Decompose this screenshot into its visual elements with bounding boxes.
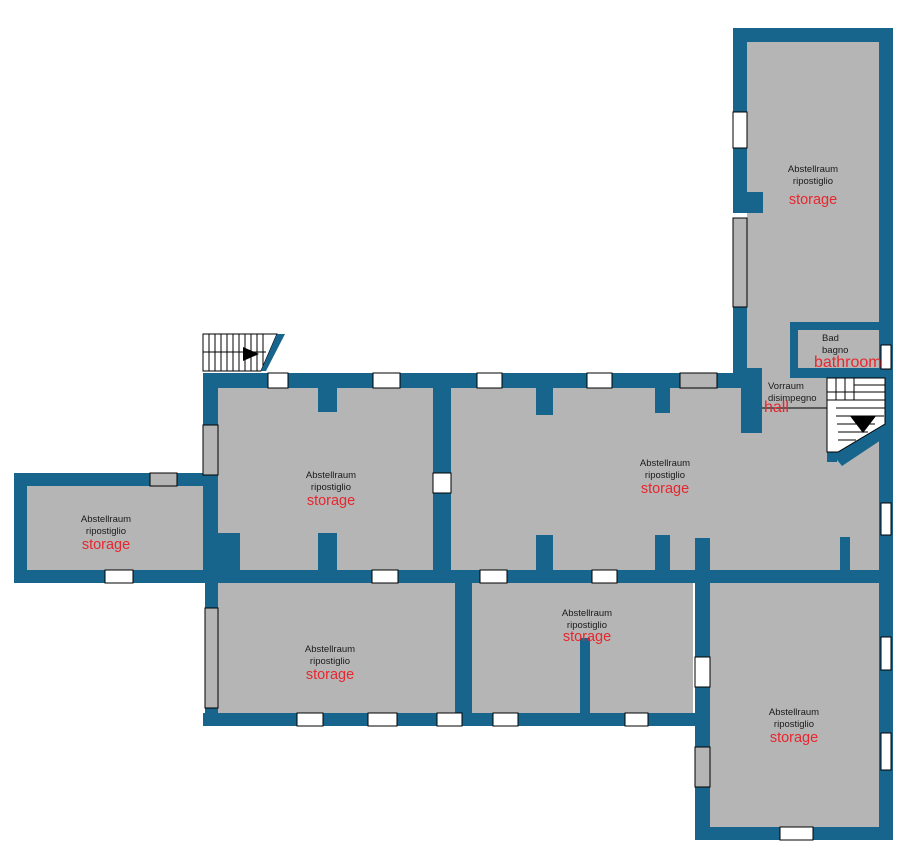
door-opening [733,218,747,307]
wall-stub [218,533,240,570]
wall-top-right-room-top [733,28,893,42]
room-name-en: storage [770,730,818,746]
window [733,112,747,148]
room-name-en: storage [82,537,130,553]
room-name-de: Bad [822,333,839,344]
label-storage-west: Abstellraum ripostiglio storage [81,514,131,553]
room-name-it: ripostiglio [645,470,685,481]
room-name-de: Abstellraum [788,164,838,175]
room-name-en: hall [764,399,789,416]
wall-west-room-left [14,473,27,583]
door-opening [433,473,451,493]
wall-west-room-top [14,473,210,486]
door-opening [695,657,710,687]
floor-plan-drawing: Abstellraum ripostiglio storage Bad bagn… [0,0,900,856]
window [780,827,813,840]
wall-bottom-room-divider [455,583,472,713]
wall-bottom-right-room-left [695,583,710,827]
wall-hall-left [741,368,762,433]
window [297,713,323,726]
room-name-de: Abstellraum [769,707,819,718]
stairs-top-left [203,334,285,371]
room-name-it: ripostiglio [793,176,833,187]
room-name-de: Abstellraum [562,608,612,619]
window [372,570,398,583]
room-name-de: Abstellraum [305,644,355,655]
wall-partition [580,638,590,713]
wall-stub [655,388,670,413]
window [105,570,133,583]
wall-top-right-room-left-lower [733,307,747,373]
wall-stub [536,388,553,415]
window [373,373,400,388]
room-name-en: storage [789,192,837,208]
window [268,373,288,388]
room-name-de: Abstellraum [81,514,131,525]
room-name-en: storage [563,629,611,645]
window [881,733,891,770]
label-storage-main-right: Abstellraum ripostiglio storage [640,458,690,497]
label-storage-bottom-left: Abstellraum ripostiglio storage [305,644,355,683]
floor-plan: Abstellraum ripostiglio storage Bad bagn… [0,0,900,856]
window [437,713,462,726]
label-storage-main-left: Abstellraum ripostiglio storage [306,470,356,509]
window [150,473,177,486]
room-name-it: ripostiglio [774,719,814,730]
room-name-de: Abstellraum [306,470,356,481]
room-name-en: storage [306,667,354,683]
wall-stub [655,535,670,570]
room-name-en: storage [641,481,689,497]
window [881,345,891,369]
wall-top-right-room-left-upper [733,42,747,112]
wall-stub [318,388,337,412]
wall-top-right-room-left-mid [733,148,747,192]
label-storage-bottom-right: Abstellraum ripostiglio storage [769,707,819,746]
wall-stub [733,192,763,213]
window [881,637,891,670]
wall-bottom-right-room-left-upper [695,538,710,583]
window [368,713,397,726]
window [587,373,612,388]
wall-east-perimeter [879,42,893,840]
label-storage-top-right: Abstellraum ripostiglio storage [788,164,838,208]
door-opening [680,373,717,388]
window [480,570,507,583]
room-name-de: Vorraum [768,381,804,392]
wall-bathroom-top [790,322,879,330]
room-name-en: bathroom [814,354,882,371]
window [493,713,518,726]
window [205,608,218,708]
room-name-en: storage [307,493,355,509]
wall-main-wing-bottom [203,570,893,583]
window [477,373,502,388]
wall-stub [318,533,337,570]
room-name-it: ripostiglio [86,526,126,537]
room-storage-bottom-right-floor [710,583,879,827]
room-name-de: Abstellraum [640,458,690,469]
door-opening [203,425,218,475]
window [695,747,710,787]
room-name-it: ripostiglio [311,482,351,493]
window [592,570,617,583]
window [881,503,891,535]
wall-stub [840,537,850,570]
room-name-it: ripostiglio [310,656,350,667]
window [625,713,648,726]
label-storage-bottom-center: Abstellraum ripostiglio storage [562,608,612,645]
wall-room-divider-center [433,373,451,570]
wall-stub [536,535,553,570]
floor-areas [27,42,879,827]
corridor-floor [747,322,790,372]
